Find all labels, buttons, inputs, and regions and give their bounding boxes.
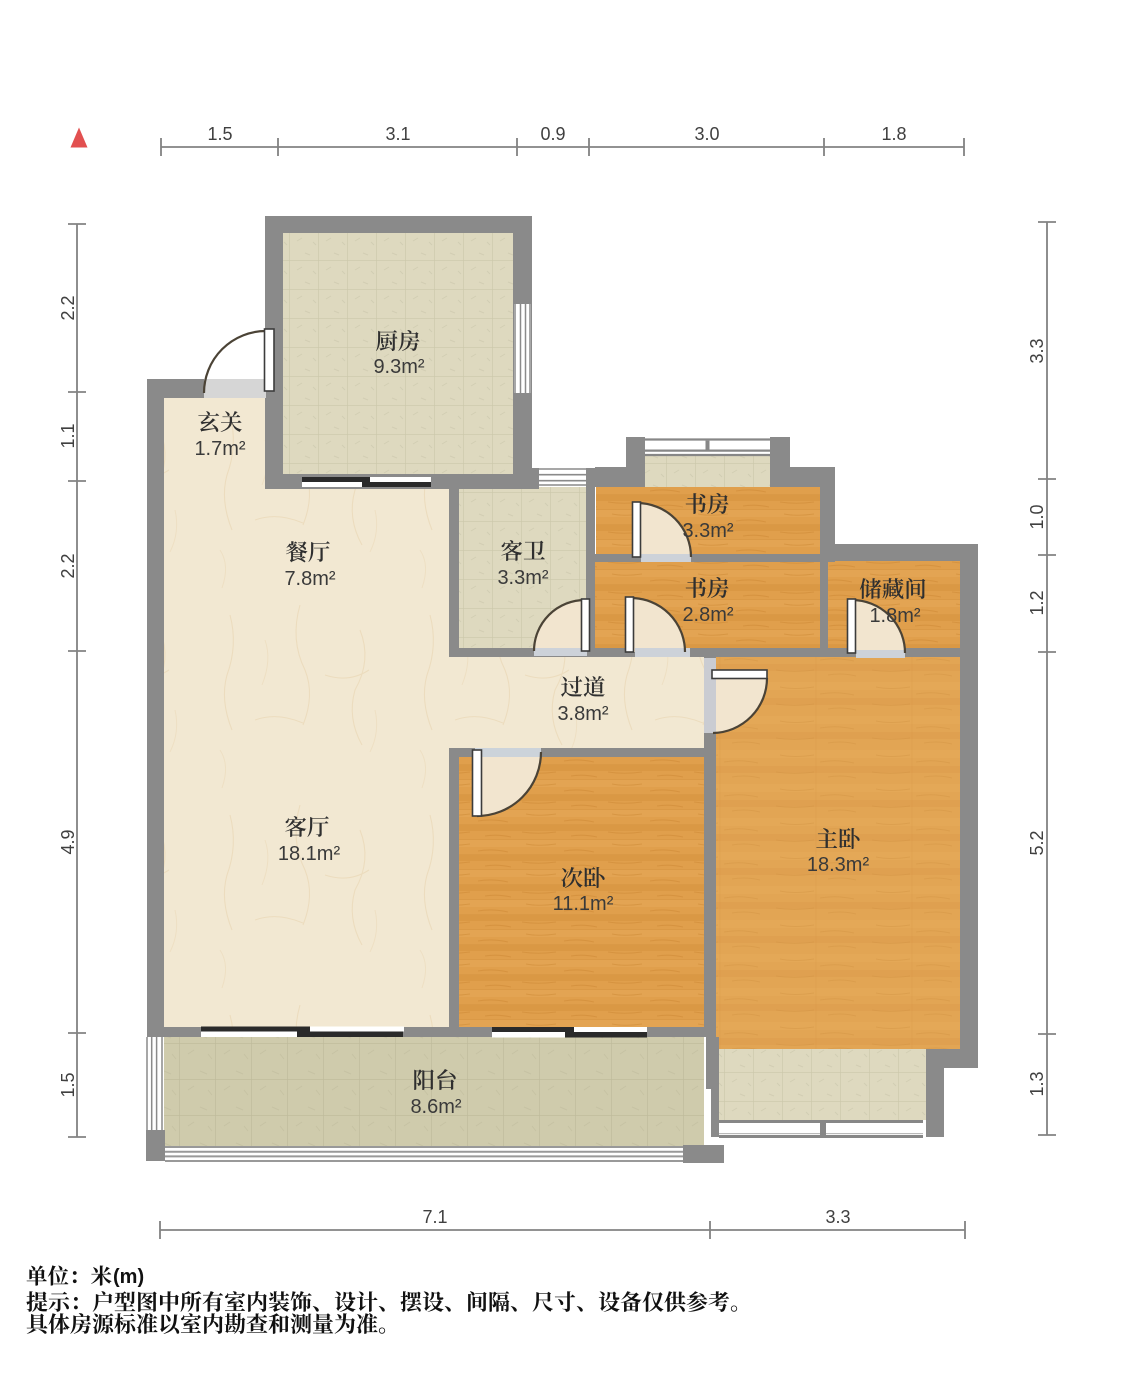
svg-text:3.0: 3.0 — [694, 124, 719, 144]
svg-text:2.8m²: 2.8m² — [682, 604, 733, 626]
svg-text:7.1: 7.1 — [422, 1207, 447, 1227]
svg-text:3.8m²: 3.8m² — [557, 703, 608, 725]
svg-text:3.3m²: 3.3m² — [682, 520, 733, 542]
svg-text:1.8: 1.8 — [881, 124, 906, 144]
svg-text:1.2: 1.2 — [1027, 590, 1047, 615]
svg-text:3.3m²: 3.3m² — [497, 567, 548, 589]
svg-text:1.5: 1.5 — [58, 1072, 78, 1097]
svg-text:1.7m²: 1.7m² — [194, 438, 245, 460]
svg-text:4.9: 4.9 — [58, 829, 78, 854]
svg-text:1.3: 1.3 — [1027, 1071, 1047, 1096]
svg-text:1.0: 1.0 — [1027, 504, 1047, 529]
svg-text:5.2: 5.2 — [1027, 830, 1047, 855]
svg-text:1.1: 1.1 — [58, 423, 78, 448]
svg-text:1.5: 1.5 — [207, 124, 232, 144]
svg-text:1.8m²: 1.8m² — [869, 605, 920, 627]
svg-text:2.2: 2.2 — [58, 295, 78, 320]
svg-text:18.3m²: 18.3m² — [807, 854, 870, 876]
svg-text:2.2: 2.2 — [58, 553, 78, 578]
svg-text:3.1: 3.1 — [385, 124, 410, 144]
svg-text:0.9: 0.9 — [540, 124, 565, 144]
svg-text:11.1m²: 11.1m² — [553, 893, 614, 915]
svg-text:3.3: 3.3 — [825, 1207, 850, 1227]
svg-text:9.3m²: 9.3m² — [373, 356, 424, 378]
svg-text:8.6m²: 8.6m² — [410, 1096, 461, 1118]
svg-text:18.1m²: 18.1m² — [278, 843, 341, 865]
svg-text:(m): (m) — [113, 1266, 144, 1288]
svg-text:3.3: 3.3 — [1027, 338, 1047, 363]
svg-text:7.8m²: 7.8m² — [284, 568, 335, 590]
